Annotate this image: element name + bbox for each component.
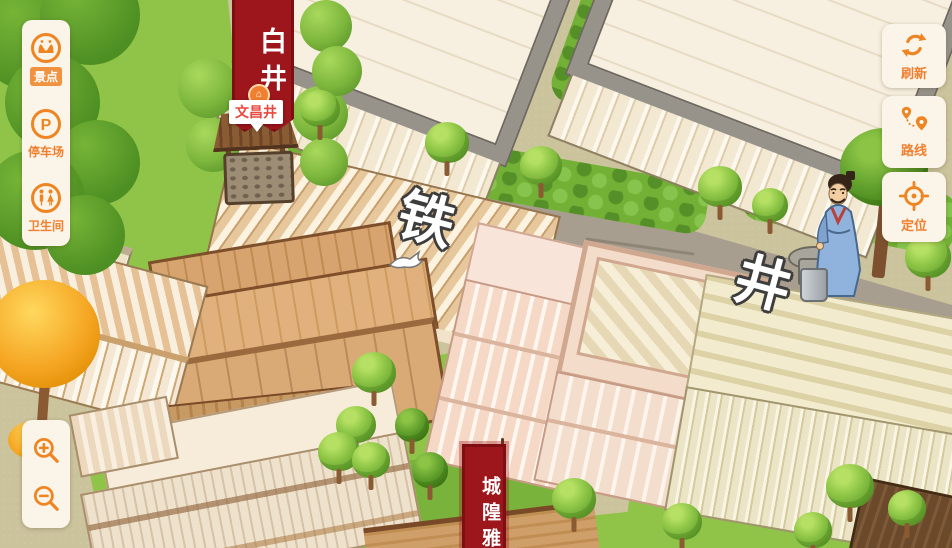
route-button[interactable]: 路线	[882, 96, 946, 168]
parking-icon: P	[30, 108, 62, 140]
scenic-spot-icon	[30, 32, 62, 64]
tree	[888, 490, 926, 532]
zoom-panel	[22, 420, 70, 528]
tree	[698, 166, 742, 214]
locate-button[interactable]: 定位	[882, 172, 946, 242]
zoom-out-button[interactable]	[30, 482, 62, 514]
tree	[794, 512, 832, 548]
category-sidebar: 景点 P 停车场 卫生间	[22, 20, 70, 246]
tree	[752, 188, 788, 228]
well-base	[223, 151, 295, 205]
sidebar-item-restroom[interactable]: 卫生间	[28, 182, 64, 234]
locate-icon	[898, 180, 930, 212]
tree	[395, 408, 429, 448]
tree	[425, 122, 469, 170]
magnifier-minus-icon	[30, 482, 62, 514]
map-canvas[interactable]: 铁 井 白井 城隍雅 ⌂ 文昌井	[0, 0, 952, 548]
tree	[352, 352, 396, 400]
banner-bottom-text: 城隍雅	[465, 476, 503, 548]
bush	[300, 0, 352, 52]
tree	[662, 503, 702, 547]
sidebar-item-label: 卫生间	[28, 217, 64, 234]
restroom-icon	[30, 182, 62, 214]
tree	[300, 90, 340, 134]
poi-label-arrow	[250, 123, 264, 139]
sidebar-item-parking[interactable]: P 停车场	[28, 108, 64, 160]
sidebar-item-label: 景点	[30, 67, 62, 86]
locate-label: 定位	[901, 215, 927, 234]
tree	[905, 235, 951, 285]
bush	[312, 46, 362, 96]
route-icon	[898, 105, 930, 137]
scenic-map-app: 铁 井 白井 城隍雅 ⌂ 文昌井 景点 P	[0, 0, 952, 548]
magnifier-plus-icon	[30, 434, 62, 466]
tree	[412, 452, 448, 494]
refresh-icon	[899, 30, 929, 60]
sidebar-item-label: 停车场	[28, 143, 64, 160]
tree	[352, 442, 390, 484]
refresh-label: 刷新	[901, 63, 927, 82]
tree	[552, 478, 596, 526]
zoom-in-button[interactable]	[30, 434, 62, 466]
svg-text:P: P	[41, 117, 52, 134]
bucket	[800, 268, 828, 302]
banner-bottom[interactable]: 城隍雅	[462, 444, 506, 548]
poi-label[interactable]: 文昌井	[229, 100, 283, 124]
route-label: 路线	[901, 140, 927, 159]
refresh-button[interactable]: 刷新	[882, 24, 946, 88]
tree	[826, 464, 874, 516]
tree	[520, 146, 562, 192]
bush	[300, 138, 348, 186]
sidebar-item-scenic[interactable]: 景点	[30, 32, 62, 86]
